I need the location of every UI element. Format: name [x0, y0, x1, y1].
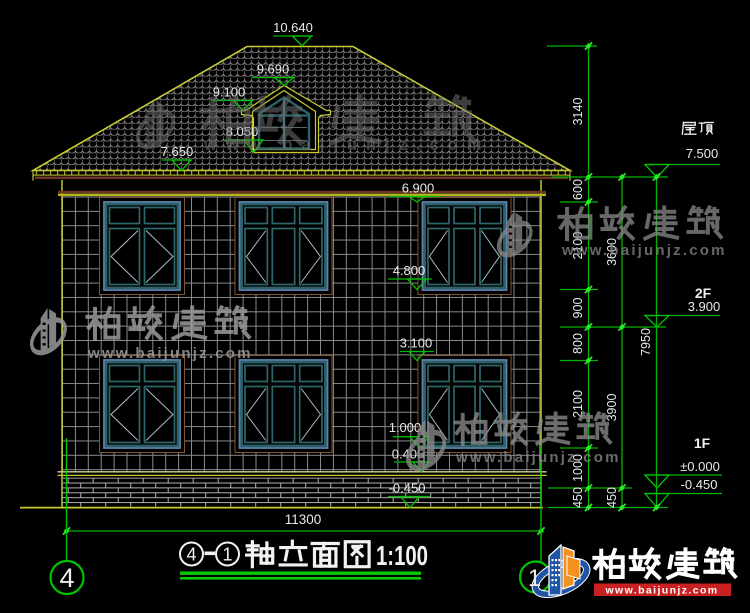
svg-text:-0.450: -0.450 [389, 481, 426, 496]
svg-text:1.000: 1.000 [389, 420, 422, 435]
svg-text:3.100: 3.100 [400, 336, 433, 351]
svg-text:600: 600 [571, 179, 585, 200]
svg-text:9.100: 9.100 [213, 85, 246, 100]
svg-text:4: 4 [186, 545, 196, 565]
svg-text:900: 900 [571, 298, 585, 319]
svg-text:1: 1 [528, 565, 541, 592]
svg-text:3140: 3140 [571, 98, 585, 126]
svg-text:7950: 7950 [639, 328, 653, 356]
svg-text:450: 450 [571, 487, 585, 508]
svg-text:4: 4 [59, 563, 74, 593]
svg-text:7.650: 7.650 [161, 144, 194, 159]
svg-text:3.900: 3.900 [688, 299, 721, 314]
svg-text:www.baijunjz.com: www.baijunjz.com [87, 345, 253, 362]
svg-text:450: 450 [605, 487, 619, 508]
svg-text:±0.000: ±0.000 [680, 459, 720, 474]
svg-text:1F: 1F [694, 435, 711, 451]
svg-text:9.690: 9.690 [257, 62, 290, 77]
svg-text:1: 1 [222, 545, 232, 565]
svg-text:-0.450: -0.450 [681, 477, 718, 492]
svg-text:800: 800 [571, 333, 585, 354]
svg-text:4.800: 4.800 [393, 263, 426, 278]
svg-text:7.500: 7.500 [686, 146, 719, 161]
svg-text:10.640: 10.640 [273, 20, 313, 35]
svg-text:www.baijunjz.com: www.baijunjz.com [203, 136, 490, 154]
svg-text:www.baijunjz.com: www.baijunjz.com [455, 449, 621, 466]
svg-text:www.baijunjz.com: www.baijunjz.com [561, 242, 727, 259]
svg-text:11300: 11300 [285, 512, 322, 527]
svg-text:www.baijunjz.com: www.baijunjz.com [604, 585, 718, 597]
svg-text:1:100: 1:100 [376, 540, 428, 571]
svg-text:6.900: 6.900 [402, 181, 435, 196]
